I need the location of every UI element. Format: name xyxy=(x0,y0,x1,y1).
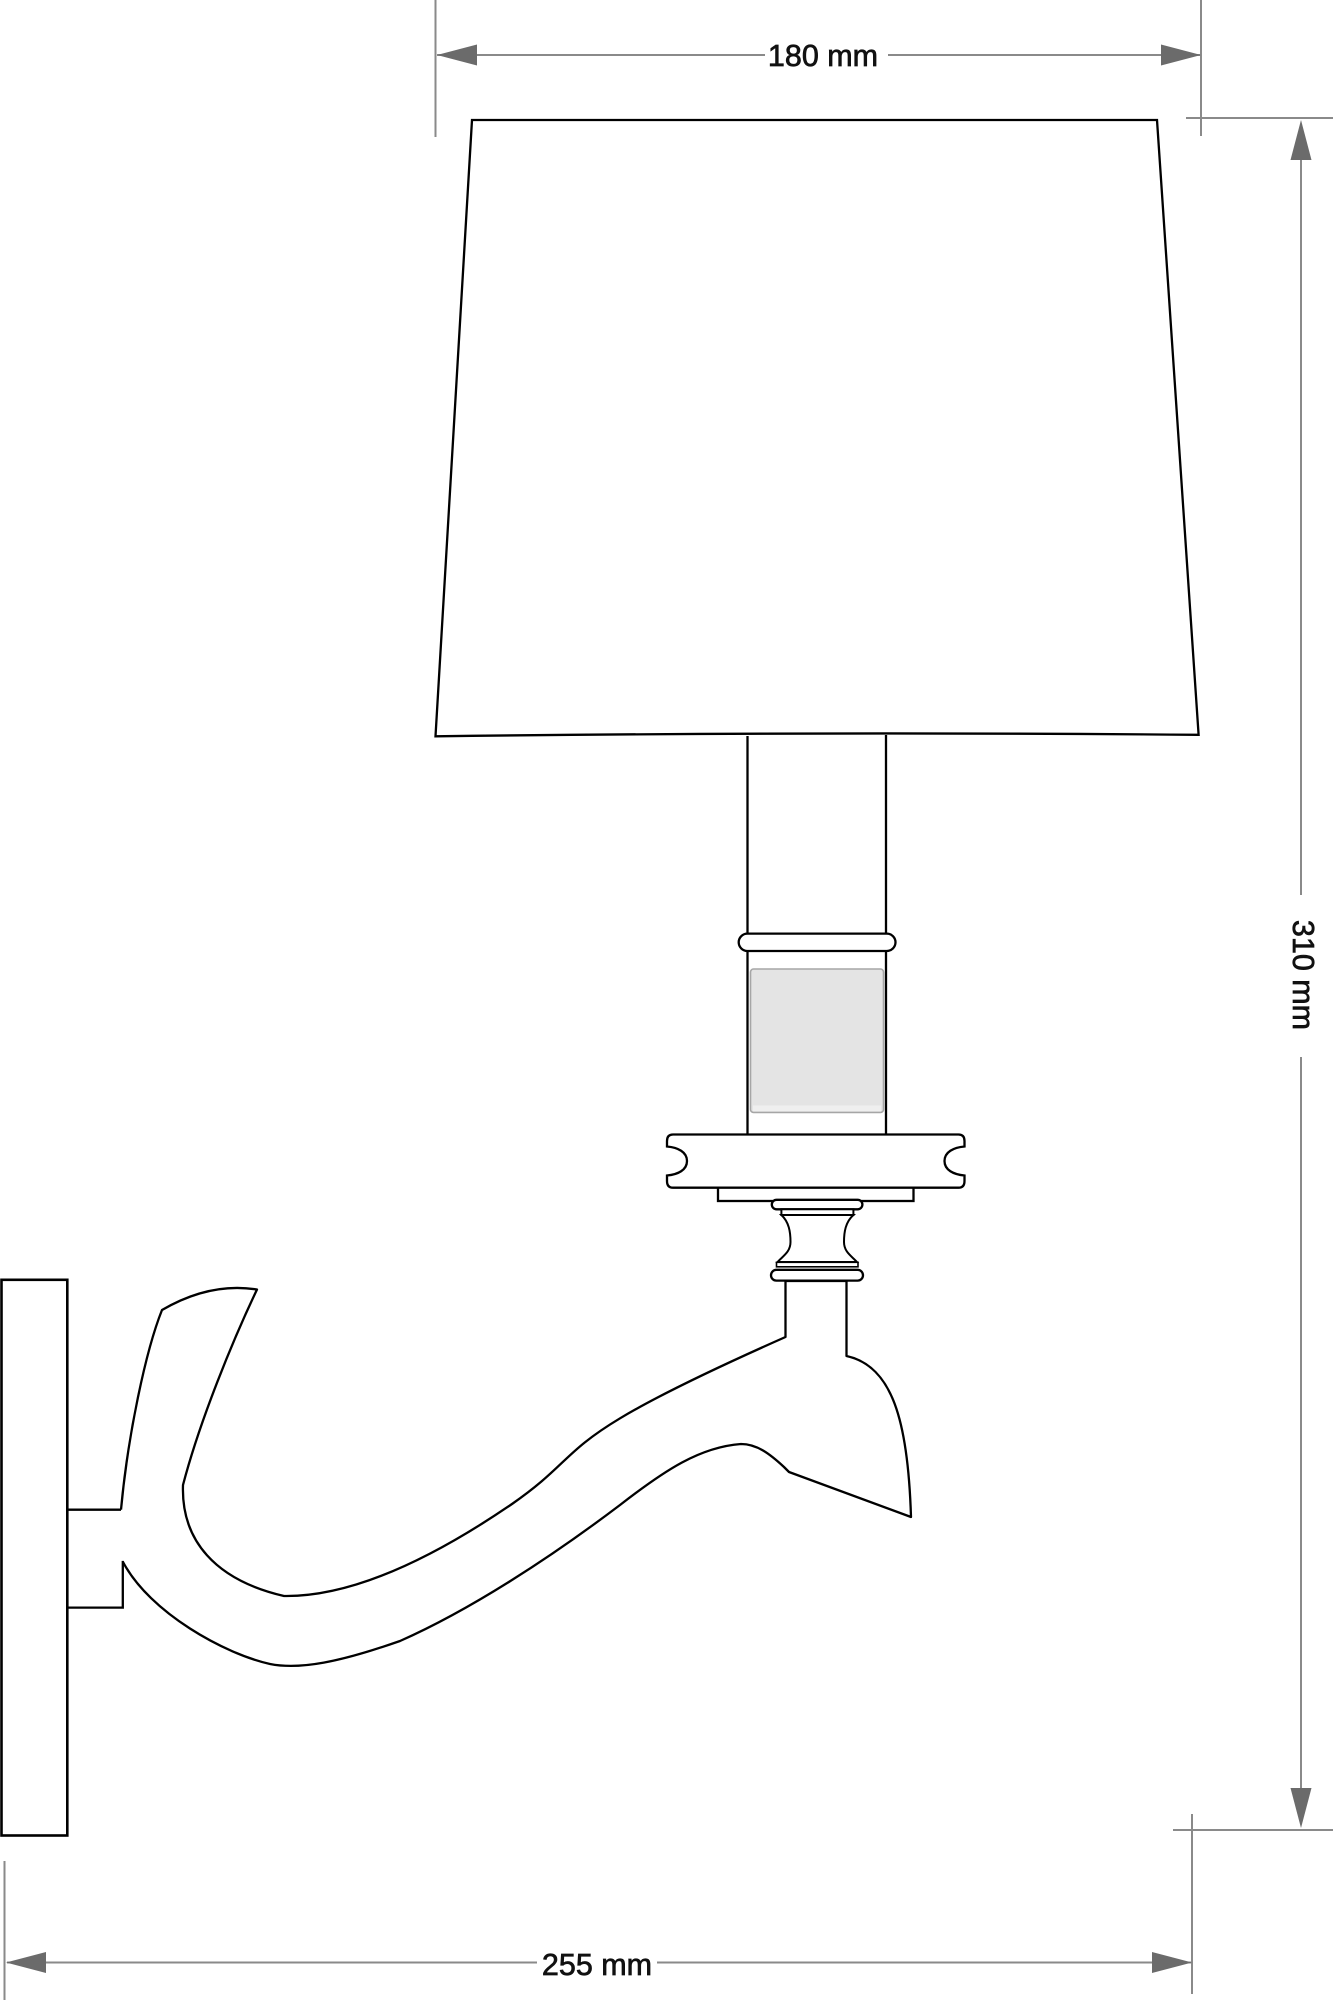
svg-text:310 mm: 310 mm xyxy=(1286,920,1320,1030)
svg-text:255 mm: 255 mm xyxy=(542,1948,652,1982)
svg-text:180 mm: 180 mm xyxy=(768,39,878,73)
